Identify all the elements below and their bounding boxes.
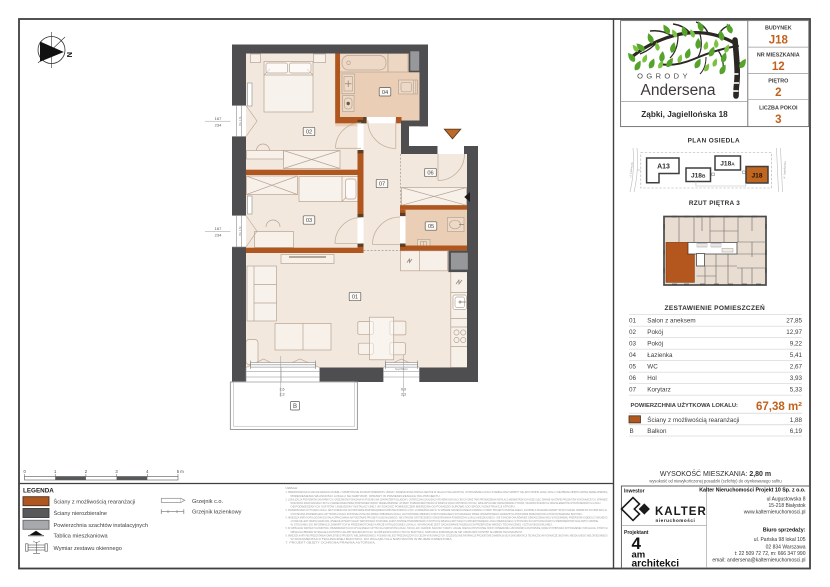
svg-text:J18B: J18B [691,173,706,180]
svg-text:B: B [293,404,297,410]
svg-text:04: 04 [382,90,388,96]
svg-text:J18: J18 [751,173,762,180]
svg-text:12: 12 [772,61,785,73]
svg-text:Ściany z możliwością rearanżac: Ściany z możliwością rearanżacji [54,497,136,505]
svg-text:www.kalternieruchomosci.pl: www.kalternieruchomosci.pl [744,510,806,516]
svg-text:9,22: 9,22 [790,341,803,348]
svg-text:167: 167 [215,226,222,231]
svg-text:3,93: 3,93 [790,375,803,382]
svg-text:Ściany z możliwością rearanżac: Ściany z możliwością rearanżacji [647,415,739,424]
svg-text:2,3: 2,3 [401,393,406,397]
svg-text:6,19: 6,19 [790,428,803,435]
svg-text:12,97: 12,97 [786,329,802,336]
svg-text:07: 07 [379,182,385,188]
svg-text:nieruchomości: nieruchomości [656,518,696,523]
svg-text:Bw 1,5k: Bw 1,5k [238,226,242,236]
svg-text:4: 4 [146,469,149,474]
svg-text:LICZBA POKOI: LICZBA POKOI [759,106,798,112]
svg-text:3: 3 [775,114,781,126]
svg-text:WYSOKOŚĆ MIESZKANIA: 2,80 m: WYSOKOŚĆ MIESZKANIA: 2,80 m [660,469,771,478]
svg-text:5,41: 5,41 [790,352,803,359]
svg-text:01: 01 [352,295,358,301]
svg-text:Salon z aneksem: Salon z aneksem [647,318,695,325]
svg-text:Andersena: Andersena [641,82,716,99]
svg-text:234: 234 [215,233,222,238]
svg-text:RZUT PIĘTRA 3: RZUT PIĘTRA 3 [689,200,740,207]
svg-text:01: 01 [629,318,637,325]
svg-text:02 834 Warszawa: 02 834 Warszawa [766,545,806,551]
svg-text:Balkon: Balkon [647,428,667,435]
svg-text:Pokój: Pokój [647,341,663,348]
svg-text:05: 05 [629,364,637,371]
svg-text:Wymiar zestawu okiennego: Wymiar zestawu okiennego [54,546,122,552]
svg-text:email: andersena@kalternieruch: email: andersena@kalternieruchomosci.pl [712,558,805,564]
svg-text:Grzejnik łazienkowy: Grzejnik łazienkowy [192,510,242,516]
svg-text:BUDYNEK: BUDYNEK [765,26,792,32]
svg-text:2,6: 2,6 [280,388,285,392]
svg-text:Bw 1,5k: Bw 1,5k [238,116,242,126]
svg-text:Powierzchnia szachtów instalac: Powierzchnia szachtów instalacyjnych [54,523,149,529]
svg-text:Pokój: Pokój [647,329,663,336]
svg-text:t: 22 509 72 72, m: 666 347 99: t: 22 509 72 72, m: 666 347 990 [735,551,806,557]
svg-text:B: B [630,428,634,435]
svg-text:Hol: Hol [647,375,656,382]
svg-text:PLAN OSIEDLA: PLAN OSIEDLA [688,138,740,145]
svg-text:27,85: 27,85 [786,318,802,325]
svg-text:Inwestor: Inwestor [624,489,645,495]
svg-text:234: 234 [215,122,222,127]
svg-text:NR MIESZKANIA: NR MIESZKANIA [757,53,800,59]
svg-text:ul. Pańska 98 lokal 105: ul. Pańska 98 lokal 105 [754,537,806,543]
svg-text:Grzejnik c.o.: Grzejnik c.o. [192,499,224,505]
svg-text:ul. Jagiellońska: ul. Jagiellońska [782,160,787,178]
svg-text:Kalter Nieruchomości Projekt 1: Kalter Nieruchomości Projekt 10 Sp. z o.… [699,488,806,494]
svg-text:Łazienka: Łazienka [647,352,673,359]
svg-text:0,9: 0,9 [401,388,406,392]
svg-text:Korytarz: Korytarz [647,387,670,394]
svg-text:2,67: 2,67 [790,364,803,371]
svg-text:05: 05 [428,224,434,230]
svg-text:2: 2 [775,87,781,99]
svg-text:7. PROJEKT OBJĘTY OCHRONĄ PR: 7. PROJEKT OBJĘTY OCHRONĄ PRAWNĄ AUTORSK… [286,541,376,545]
svg-text:OGRODY: OGRODY [637,72,691,81]
svg-text:Ściany nierozbieralne: Ściany nierozbieralne [54,509,107,517]
svg-text:PIĘTRO: PIĘTRO [768,79,788,85]
svg-text:Ząbki, Jagiellońska 18: Ząbki, Jagiellońska 18 [641,110,728,119]
svg-text:architekci: architekci [632,559,680,570]
svg-text:5 m: 5 m [177,469,184,474]
svg-text:LEGENDA: LEGENDA [23,488,54,495]
svg-text:2: 2 [85,469,88,474]
svg-text:J18A: J18A [720,161,735,168]
svg-text:1. PRZEDSTAWIONA NA RZUCIE A: 1. PRZEDSTAWIONA NA RZUCIE ARANŻACJA MEB… [286,489,608,494]
svg-text:ZESTAWIENIE POMIESZCZEŃ: ZESTAWIENIE POMIESZCZEŃ [665,303,766,312]
svg-text:03: 03 [629,341,637,348]
svg-text:Tablica mieszkaniowa: Tablica mieszkaniowa [54,533,109,539]
svg-text:07: 07 [629,387,637,394]
svg-text:167: 167 [215,116,222,121]
svg-text:1,88: 1,88 [790,417,803,424]
svg-text:wysokość od niewykończonej pos: wysokość od niewykończonej posadzki (szl… [649,479,781,484]
svg-text:3: 3 [115,469,118,474]
svg-text:02: 02 [306,130,312,136]
svg-text:67,38 m²: 67,38 m² [756,401,802,413]
svg-text:POWIERZCHNIA UŻYTKOWA LOKALU:: POWIERZCHNIA UŻYTKOWA LOKALU: [631,402,739,409]
svg-text:1: 1 [54,469,57,474]
svg-text:0: 0 [24,469,27,474]
svg-text:06: 06 [427,171,433,177]
svg-text:5,33: 5,33 [790,387,803,394]
svg-text:06: 06 [629,375,637,382]
svg-text:N: N [65,52,74,57]
svg-text:UWAGA:: UWAGA: [286,486,299,490]
svg-text:15-218 Białystok: 15-218 Białystok [769,503,806,509]
svg-text:WC: WC [647,364,658,371]
svg-text:2,3: 2,3 [280,393,285,397]
svg-text:hsp=85cm: hsp=85cm [395,367,409,371]
svg-text:KALTER: KALTER [655,506,707,518]
svg-text:04: 04 [629,352,637,359]
svg-text:A13: A13 [657,164,670,171]
svg-text:J18: J18 [769,35,789,47]
svg-text:03: 03 [306,218,312,224]
svg-text:Biuro sprzedaży:: Biuro sprzedaży: [763,528,806,534]
svg-text:ul Augustowska 8: ul Augustowska 8 [767,497,806,503]
svg-text:02: 02 [629,329,637,336]
